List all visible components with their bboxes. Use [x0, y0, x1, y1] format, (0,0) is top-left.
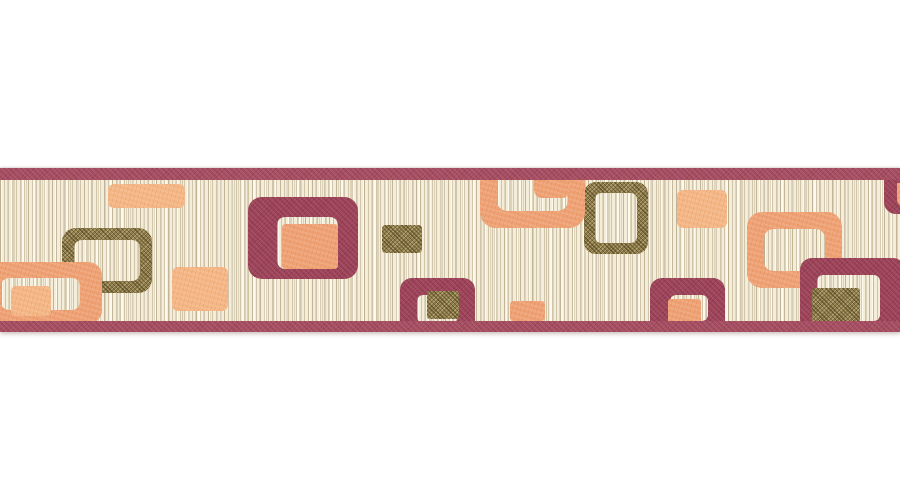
olive-rect-in-bottom-frame	[427, 291, 459, 319]
olive-frame-center-hole	[595, 193, 637, 243]
orange-rect-top-right	[677, 190, 727, 228]
olive-rect-in-far-right-frame	[812, 288, 860, 322]
orange-rect-mid-left	[172, 267, 228, 311]
bottom-band	[0, 321, 900, 332]
page-background	[0, 0, 900, 500]
top-band	[0, 168, 900, 180]
orange-rect-bottom-center	[510, 301, 545, 321]
wallpaper-border-strip	[0, 168, 900, 332]
orange-rect-in-maroon-frame	[282, 224, 338, 269]
orange-rect-top-left	[108, 184, 185, 208]
olive-frame-center	[584, 182, 648, 254]
orange-inner-rect-left	[11, 286, 51, 316]
olive-rect-center-top	[382, 225, 422, 253]
